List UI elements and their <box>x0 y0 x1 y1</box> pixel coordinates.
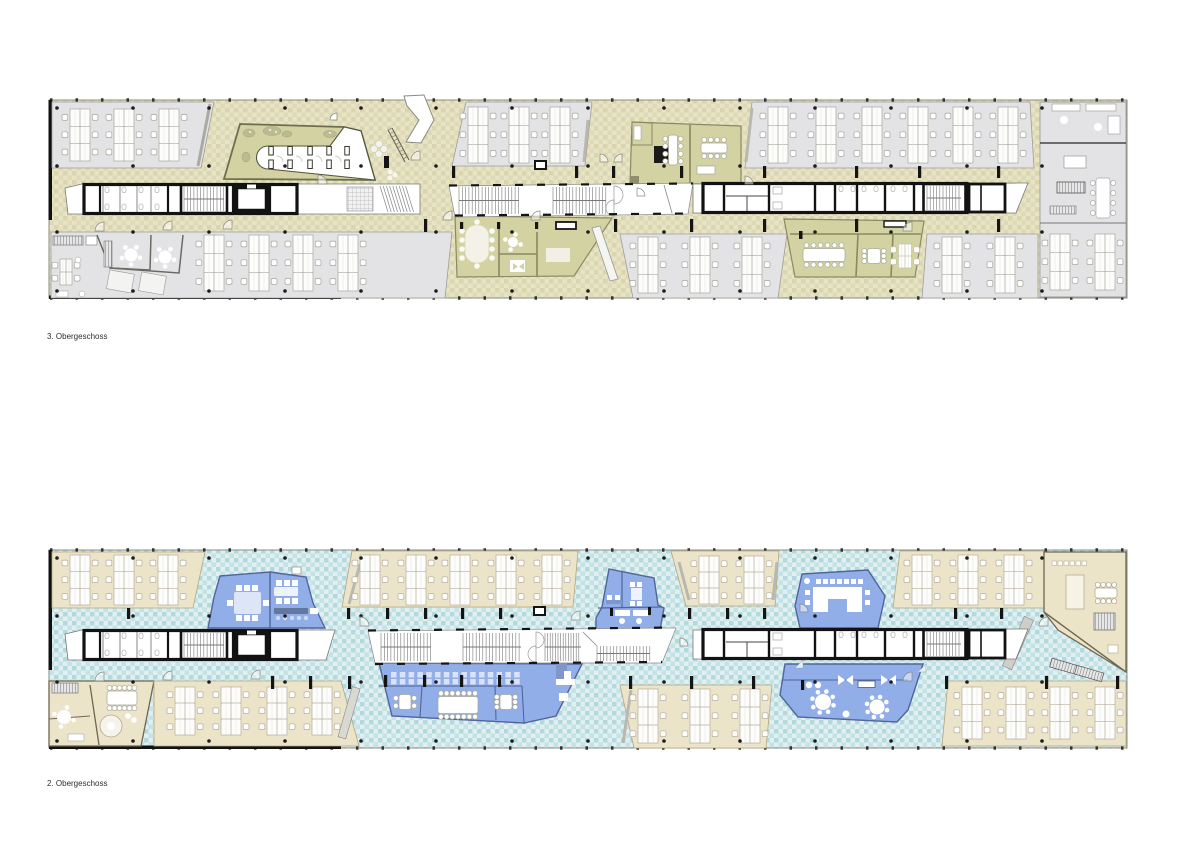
svg-text:3. Obergeschoss: 3. Obergeschoss <box>47 332 107 341</box>
svg-text:2. Obergeschoss: 2. Obergeschoss <box>47 779 107 788</box>
